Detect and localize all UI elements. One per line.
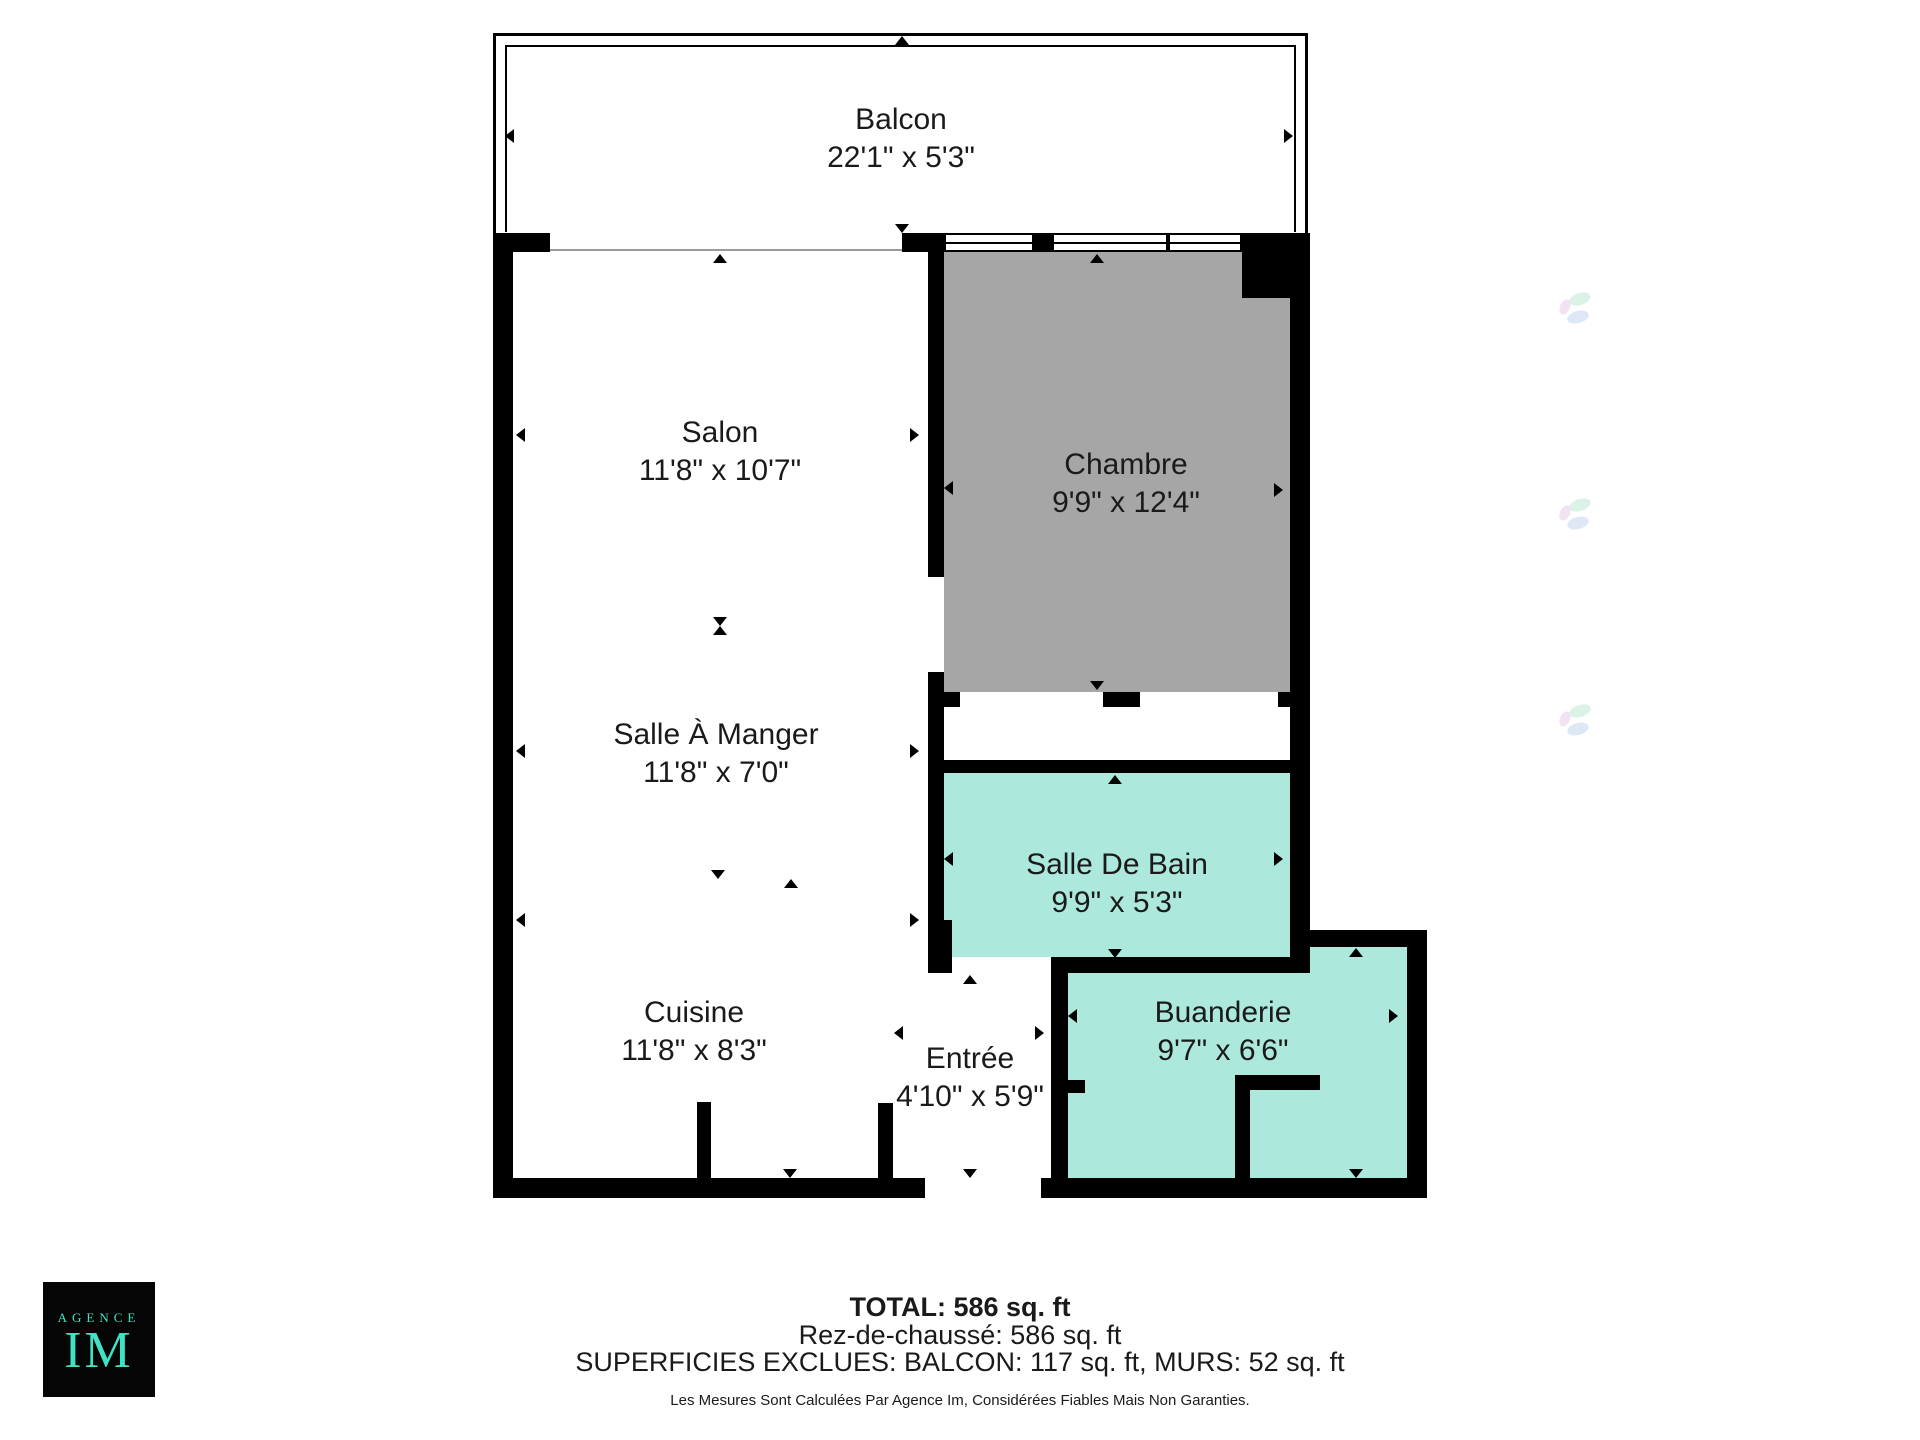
wall-segment (493, 233, 550, 252)
measure-arrow-icon (1274, 852, 1283, 866)
measure-arrow-icon (711, 870, 725, 879)
floorplan-canvas: Balcon 22'1" x 5'3" Salon 11'8" x 10'7" … (0, 0, 1920, 1440)
wall-segment (1051, 957, 1292, 973)
measure-arrow-icon (1284, 129, 1293, 143)
measure-arrow-icon (516, 428, 525, 442)
room-dims: 11'8" x 10'7" (639, 452, 801, 490)
wall-segment (944, 760, 1292, 773)
wall-segment (1103, 692, 1140, 707)
wall-segment (1242, 233, 1310, 298)
leaf-petal-icon (1566, 308, 1590, 325)
watermark-leaf-icon (1557, 703, 1597, 737)
wall-segment (928, 252, 944, 577)
room-label-salon: Salon 11'8" x 10'7" (639, 414, 801, 490)
room-dims: 4'10" x 5'9" (896, 1078, 1044, 1116)
wall-segment (1290, 947, 1310, 973)
room-dims: 9'9" x 12'4" (1052, 484, 1200, 522)
wall-segment (944, 920, 952, 973)
window-glyph (1052, 233, 1168, 252)
measure-arrow-icon (1349, 948, 1363, 957)
excluded-area-text: SUPERFICIES EXCLUES: BALCON: 117 sq. ft,… (0, 1347, 1920, 1378)
total-area-text: TOTAL: 586 sq. ft (0, 1292, 1920, 1323)
measure-arrow-icon (910, 428, 919, 442)
wall-segment (928, 672, 944, 973)
wall-segment (697, 1102, 711, 1178)
measure-arrow-icon (963, 1169, 977, 1178)
room-name: Salle De Bain (1026, 846, 1208, 884)
measure-arrow-icon (1274, 483, 1283, 497)
room-name: Buanderie (1155, 994, 1292, 1032)
room-name: Balcon (827, 101, 975, 139)
measure-arrow-icon (963, 975, 977, 984)
wall-segment (1235, 1090, 1250, 1183)
balcony-door-threshold (550, 249, 902, 251)
measure-arrow-icon (505, 129, 514, 143)
leaf-petal-icon (1568, 702, 1593, 720)
room-label-entree: Entrée 4'10" x 5'9" (896, 1040, 1044, 1116)
window-glyph (1168, 233, 1242, 252)
wall-segment (1041, 1178, 1427, 1198)
room-name: Salle À Manger (613, 716, 818, 754)
room-name: Salon (639, 414, 801, 452)
disclaimer-text: Les Mesures Sont Calculées Par Agence Im… (0, 1392, 1920, 1409)
room-name: Chambre (1052, 446, 1200, 484)
measure-arrow-icon (1068, 1009, 1077, 1023)
room-dims: 9'7" x 6'6" (1155, 1032, 1292, 1070)
leaf-petal-icon (1566, 514, 1590, 531)
measure-arrow-icon (1090, 254, 1104, 263)
measure-arrow-icon (1108, 949, 1122, 958)
wall-segment (944, 692, 960, 707)
wall-segment (493, 1178, 925, 1198)
room-label-balcon: Balcon 22'1" x 5'3" (827, 101, 975, 177)
measure-arrow-icon (713, 617, 727, 626)
measure-arrow-icon (713, 254, 727, 263)
wall-segment (1290, 233, 1310, 963)
measure-arrow-icon (910, 913, 919, 927)
room-label-salle-de-bain: Salle De Bain 9'9" x 5'3" (1026, 846, 1208, 922)
measure-arrow-icon (784, 879, 798, 888)
measure-arrow-icon (1090, 681, 1104, 690)
window-mullion (1034, 233, 1052, 252)
room-name: Entrée (896, 1040, 1044, 1078)
window-glyph (944, 233, 1034, 252)
measure-arrow-icon (1035, 1026, 1044, 1040)
measure-arrow-icon (1108, 775, 1122, 784)
measure-arrow-icon (894, 1026, 903, 1040)
room-dims: 9'9" x 5'3" (1026, 884, 1208, 922)
wall-segment (493, 233, 513, 1198)
measure-arrow-icon (910, 744, 919, 758)
room-name: Cuisine (621, 994, 767, 1032)
leaf-petal-icon (1566, 720, 1590, 737)
wall-segment (902, 233, 944, 252)
wall-segment (878, 1103, 893, 1178)
measure-arrow-icon (516, 913, 525, 927)
room-dims: 22'1" x 5'3" (827, 139, 975, 177)
agency-logo: AGENCE IM (43, 1282, 155, 1397)
agency-logo-main-text: IM (43, 1326, 155, 1376)
measure-arrow-icon (1389, 1009, 1398, 1023)
room-dims: 11'8" x 7'0" (613, 754, 818, 792)
measure-arrow-icon (783, 1169, 797, 1178)
room-label-chambre: Chambre 9'9" x 12'4" (1052, 446, 1200, 522)
room-label-salle-a-manger: Salle À Manger 11'8" x 7'0" (613, 716, 818, 792)
watermark-leaf-icon (1557, 291, 1597, 325)
room-label-cuisine: Cuisine 11'8" x 8'3" (621, 994, 767, 1070)
room-dims: 11'8" x 8'3" (621, 1032, 767, 1070)
measure-arrow-icon (1349, 1169, 1363, 1178)
measure-arrow-icon (895, 36, 909, 45)
watermark-leaf-icon (1557, 497, 1597, 531)
wall-segment (1407, 930, 1427, 1196)
measure-arrow-icon (944, 481, 953, 495)
leaf-petal-icon (1568, 496, 1593, 514)
measure-arrow-icon (944, 852, 953, 866)
wall-segment (1235, 1075, 1320, 1090)
measure-arrow-icon (713, 626, 727, 635)
room-label-buanderie: Buanderie 9'7" x 6'6" (1155, 994, 1292, 1070)
leaf-petal-icon (1568, 290, 1593, 308)
measure-arrow-icon (895, 224, 909, 233)
wall-segment (1051, 973, 1068, 1196)
wall-segment (1068, 1080, 1085, 1093)
measure-arrow-icon (516, 744, 525, 758)
